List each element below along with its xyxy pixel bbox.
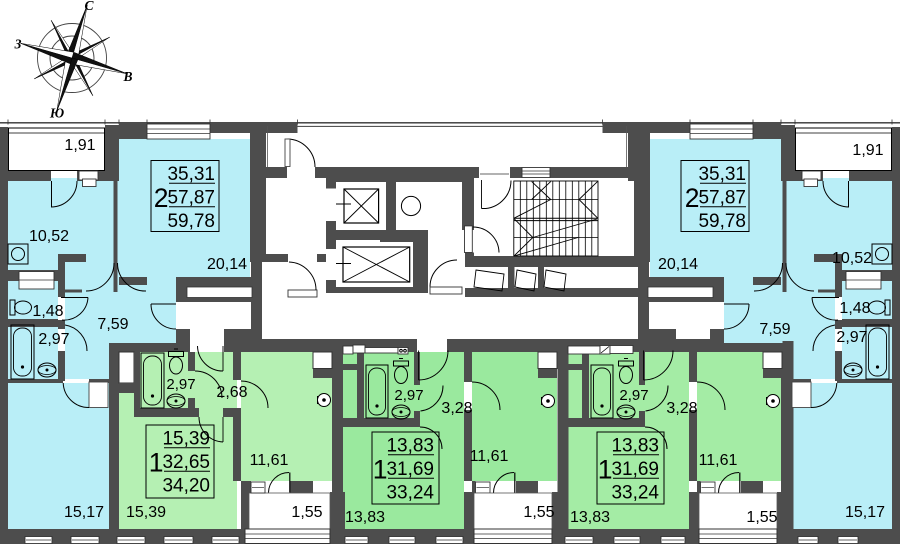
svg-text:3,28: 3,28 (666, 400, 697, 417)
svg-text:32,65: 32,65 (162, 452, 210, 473)
svg-text:С: С (84, 0, 94, 13)
svg-text:З: З (14, 37, 22, 52)
svg-text:1,55: 1,55 (291, 504, 322, 521)
svg-text:15,17: 15,17 (845, 504, 885, 521)
svg-text:2,68: 2,68 (216, 384, 247, 401)
svg-text:11,61: 11,61 (699, 452, 738, 469)
svg-text:57,87: 57,87 (698, 188, 746, 209)
svg-text:11,61: 11,61 (250, 452, 289, 469)
svg-text:1,55: 1,55 (746, 509, 777, 526)
svg-text:13,83: 13,83 (345, 509, 385, 526)
svg-text:1,91: 1,91 (64, 137, 95, 154)
svg-text:1,55: 1,55 (523, 504, 554, 521)
svg-text:1: 1 (149, 448, 164, 478)
svg-text:31,69: 31,69 (611, 459, 659, 480)
svg-text:2: 2 (685, 183, 700, 213)
svg-text:2,97: 2,97 (619, 387, 648, 404)
svg-text:11,61: 11,61 (470, 448, 509, 465)
svg-text:1: 1 (373, 455, 388, 485)
svg-text:20,14: 20,14 (207, 256, 247, 273)
svg-text:57,87: 57,87 (167, 188, 215, 209)
svg-text:34,20: 34,20 (162, 476, 210, 497)
svg-text:33,24: 33,24 (386, 483, 434, 504)
svg-text:7,59: 7,59 (97, 316, 128, 333)
svg-text:2,97: 2,97 (166, 376, 195, 393)
svg-text:33,24: 33,24 (611, 483, 659, 504)
svg-text:1,48: 1,48 (32, 303, 63, 320)
svg-text:7,59: 7,59 (759, 321, 790, 338)
svg-text:3,28: 3,28 (441, 400, 472, 417)
svg-text:В: В (122, 69, 132, 84)
svg-text:1,48: 1,48 (839, 300, 870, 317)
svg-text:59,78: 59,78 (698, 211, 746, 232)
svg-text:20,14: 20,14 (658, 256, 698, 273)
svg-text:2,97: 2,97 (394, 387, 423, 404)
svg-text:Ю: Ю (49, 106, 64, 121)
svg-text:10,52: 10,52 (29, 228, 69, 245)
svg-text:59,78: 59,78 (167, 211, 215, 232)
svg-text:13,83: 13,83 (570, 509, 610, 526)
svg-text:35,31: 35,31 (167, 164, 215, 185)
svg-text:2,97: 2,97 (38, 331, 69, 348)
svg-text:35,31: 35,31 (698, 164, 746, 185)
svg-text:15,39: 15,39 (162, 429, 210, 450)
svg-text:31,69: 31,69 (386, 459, 434, 480)
svg-text:15,17: 15,17 (64, 504, 104, 521)
svg-text:13,83: 13,83 (386, 436, 434, 457)
svg-text:2,97: 2,97 (836, 329, 867, 346)
svg-text:1: 1 (598, 455, 613, 485)
svg-text:10,52: 10,52 (832, 250, 872, 267)
svg-text:2: 2 (154, 183, 169, 213)
svg-text:13,83: 13,83 (611, 436, 659, 457)
svg-text:15,39: 15,39 (126, 504, 166, 521)
svg-text:1,91: 1,91 (852, 142, 883, 159)
